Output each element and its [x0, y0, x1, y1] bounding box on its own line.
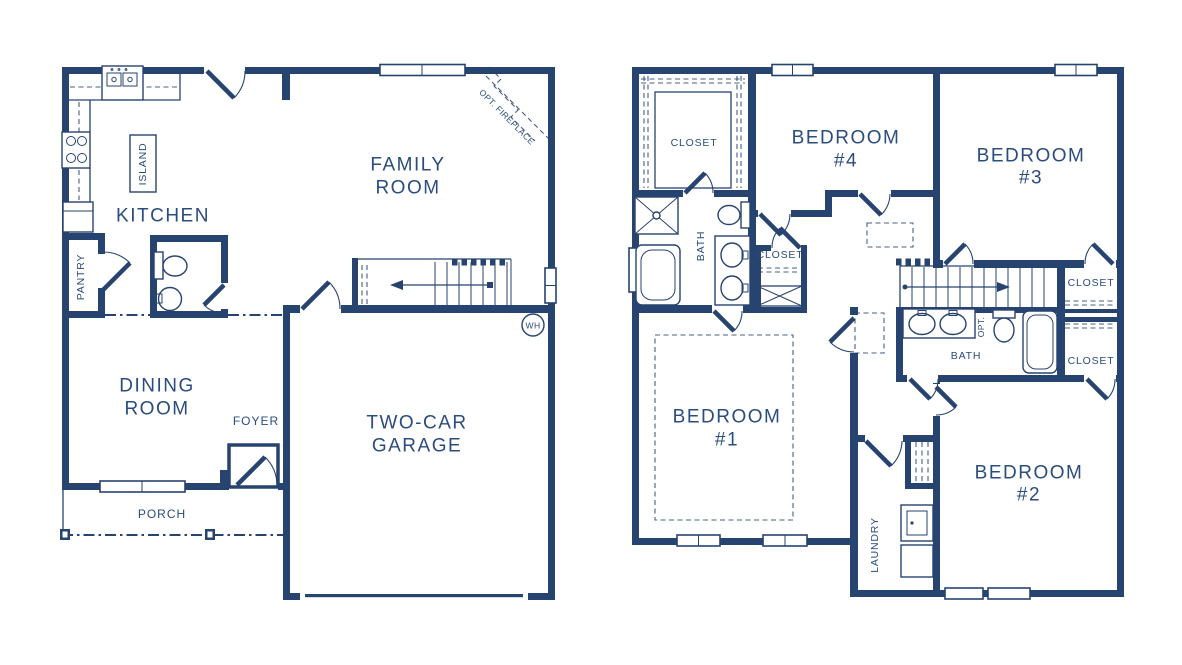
owner-closet-detail [641, 76, 745, 188]
owner-bath-fixtures [635, 197, 750, 305]
label-opt-sink: OPT. [976, 317, 986, 338]
label-dining: DINING [119, 376, 195, 397]
shower [635, 197, 678, 234]
water-heater-label: WH [526, 321, 541, 331]
first-floor-windows [100, 65, 556, 493]
powder-room-fixtures [154, 252, 187, 311]
label-garage: TWO-CAR [366, 413, 467, 434]
stair-direction-arrow [390, 280, 493, 290]
bathtub [1023, 311, 1057, 373]
kitchen-sink [102, 66, 143, 100]
washer [901, 505, 933, 541]
label-bedroom3-2: #3 [1019, 168, 1043, 189]
label-owner-closet: CLOSET [671, 137, 718, 149]
bedroom1-optional-area [655, 335, 793, 520]
label-closet-bedroom3: CLOSET [1068, 277, 1115, 289]
label-island: ISLAND [137, 143, 149, 186]
label-family-room-2: ROOM [375, 178, 440, 199]
first-floor-plan: WH FAMILY ROOM KITCHEN ISLAND PANTRY DIN… [60, 65, 556, 602]
label-closet-bedroom2: CLOSET [1068, 355, 1115, 367]
second-floor-stairs [896, 262, 1057, 307]
label-owner-bath: BATH [695, 231, 707, 261]
toilet [993, 310, 1015, 342]
label-porch: PORCH [138, 507, 186, 521]
floor-plan: WH FAMILY ROOM KITCHEN ISLAND PANTRY DIN… [0, 0, 1182, 665]
range [62, 132, 90, 168]
label-bedroom1: BEDROOM [673, 407, 782, 428]
label-foyer: FOYER [233, 414, 279, 428]
toilet [718, 202, 750, 228]
label-bedroom4: BEDROOM [792, 128, 901, 149]
second-floor-plan: CLOSET BATH BEDROOM #4 BEDROOM #3 CLOSET… [629, 65, 1124, 600]
refrigerator [63, 202, 93, 232]
label-bedroom1-2: #1 [715, 430, 739, 451]
toilet [154, 252, 187, 279]
sink [156, 288, 182, 311]
label-hall-bath: BATH [951, 350, 981, 362]
label-dining-2: ROOM [124, 399, 189, 420]
label-opt-fireplace: OPT. FIREPLACE [477, 87, 536, 146]
double-vanity [715, 236, 750, 305]
label-hall-closet: CLOSET [757, 249, 804, 261]
label-bedroom2: BEDROOM [975, 463, 1084, 484]
label-garage-2: GARAGE [372, 436, 462, 457]
stair-direction-arrow [903, 282, 1011, 292]
first-floor-garage-door [300, 592, 528, 601]
bathtub [636, 245, 680, 305]
label-kitchen: KITCHEN [116, 206, 210, 227]
label-family-room: FAMILY [370, 155, 445, 176]
first-floor-stairs [352, 259, 511, 305]
label-bedroom3: BEDROOM [977, 146, 1086, 167]
label-bedroom2-2: #2 [1017, 485, 1041, 506]
label-laundry: LAUNDRY [869, 517, 881, 573]
right-closets-detail [1065, 301, 1116, 328]
label-bedroom4-2: #4 [834, 151, 858, 172]
dryer [901, 545, 933, 577]
hall-linen-closet-detail [757, 268, 802, 306]
label-pantry: PANTRY [75, 254, 87, 300]
water-heater-symbol: WH [522, 314, 544, 336]
